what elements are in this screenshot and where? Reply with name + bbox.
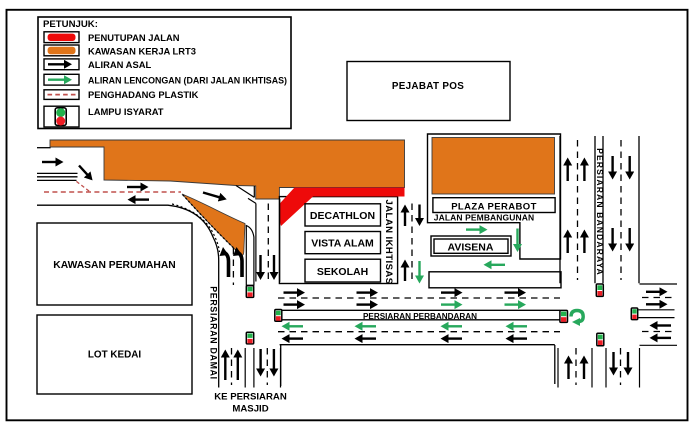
svg-text:SEKOLAH: SEKOLAH	[317, 266, 368, 278]
svg-text:PENGHADANG PLASTIK: PENGHADANG PLASTIK	[88, 89, 199, 100]
svg-text:LOT KEDAI: LOT KEDAI	[88, 350, 141, 361]
svg-text:PERSIARAN PERBANDARAN: PERSIARAN PERBANDARAN	[363, 312, 477, 321]
svg-text:PEJABAT POS: PEJABAT POS	[392, 81, 464, 92]
svg-text:VISTA ALAM: VISTA ALAM	[311, 238, 374, 250]
svg-text:ALIRAN ASAL: ALIRAN ASAL	[88, 59, 151, 70]
svg-text:JALAN PEMBANGUNAN: JALAN PEMBANGUNAN	[434, 212, 534, 222]
svg-text:MASJID: MASJID	[232, 404, 268, 415]
svg-text:KAWASAN PERUMAHAN: KAWASAN PERUMAHAN	[53, 260, 175, 271]
svg-text:LAMPU ISYARAT: LAMPU ISYARAT	[88, 106, 164, 117]
svg-text:PERSIARAN DAMAI: PERSIARAN DAMAI	[209, 286, 219, 380]
svg-text:KE PERSIARAN: KE PERSIARAN	[214, 392, 287, 403]
svg-text:AVISENA: AVISENA	[448, 242, 494, 254]
svg-text:KAWASAN KERJA LRT3: KAWASAN KERJA LRT3	[88, 45, 196, 56]
svg-text:JALAN IKHTISAS: JALAN IKHTISAS	[383, 199, 394, 284]
svg-text:PLAZA PERABOT: PLAZA PERABOT	[451, 201, 537, 212]
svg-text:PENUTUPAN JALAN: PENUTUPAN JALAN	[88, 32, 180, 43]
svg-text:PETUNJUK:: PETUNJUK:	[43, 19, 98, 30]
svg-text:PERSIARAN BANDARAYA: PERSIARAN BANDARAYA	[595, 148, 605, 276]
svg-text:DECATHLON: DECATHLON	[310, 210, 375, 222]
svg-text:ALIRAN LENCONGAN (DARI JALAN I: ALIRAN LENCONGAN (DARI JALAN IKHTISAS)	[88, 74, 287, 85]
